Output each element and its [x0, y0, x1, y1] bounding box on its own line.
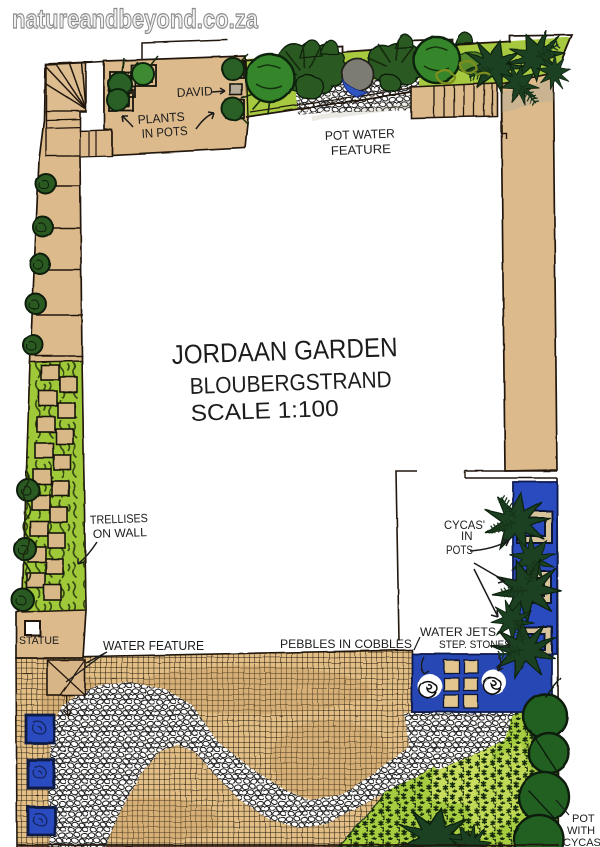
svg-text:POTS: POTS: [446, 545, 473, 557]
svg-text:ON WALL: ON WALL: [93, 525, 148, 541]
svg-text:IN: IN: [461, 531, 473, 543]
svg-text:POT: POT: [572, 813, 595, 825]
svg-text:SCALE 1:100: SCALE 1:100: [190, 395, 339, 426]
svg-text:STATUE: STATUE: [19, 635, 59, 647]
svg-text:DAVID: DAVID: [176, 84, 213, 100]
svg-text:natureandbeyond.co.za: natureandbeyond.co.za: [12, 4, 259, 34]
svg-text:STEP. STONES: STEP. STONES: [439, 639, 511, 651]
svg-text:CYCAS: CYCAS: [563, 837, 600, 847]
svg-text:PEBBLES IN COBBLES: PEBBLES IN COBBLES: [280, 639, 412, 651]
svg-text:WATER JETS: WATER JETS: [420, 627, 496, 639]
svg-text:WITH: WITH: [567, 825, 595, 837]
svg-text:WATER FEATURE: WATER FEATURE: [103, 639, 204, 653]
svg-text:FEATURE: FEATURE: [331, 142, 391, 158]
svg-text:POT WATER: POT WATER: [325, 127, 395, 143]
